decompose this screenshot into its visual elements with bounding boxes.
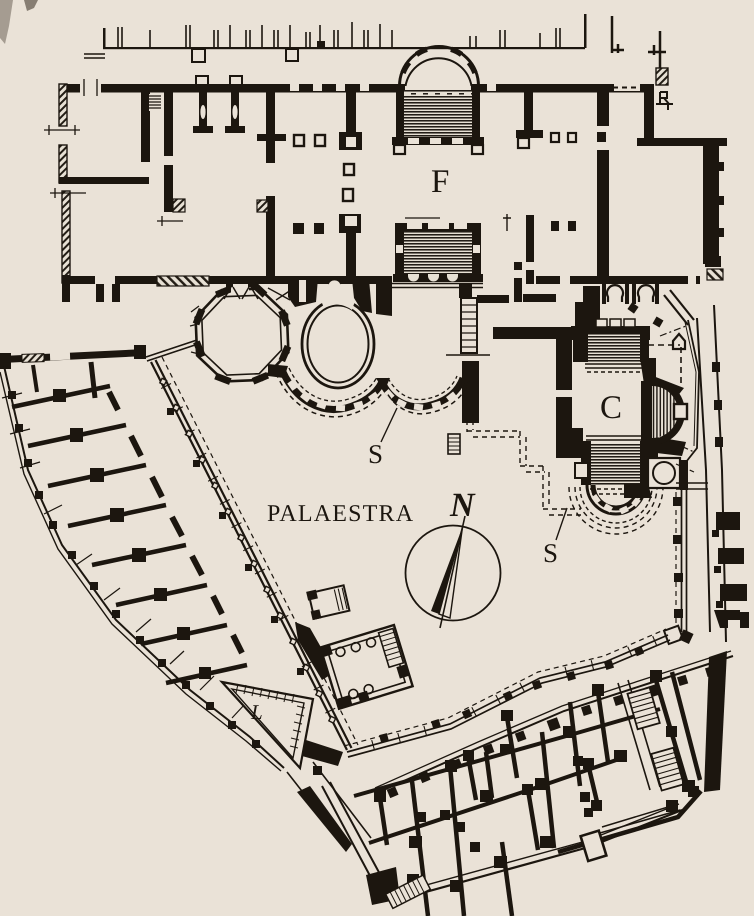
svg-text:PALAESTRA: PALAESTRA <box>267 501 414 527</box>
svg-text:C: C <box>600 390 622 426</box>
svg-text:S: S <box>368 439 383 469</box>
svg-text:S: S <box>543 538 558 568</box>
svg-text:N: N <box>449 487 476 524</box>
svg-text:F: F <box>431 164 449 200</box>
svg-text:L: L <box>250 700 263 724</box>
